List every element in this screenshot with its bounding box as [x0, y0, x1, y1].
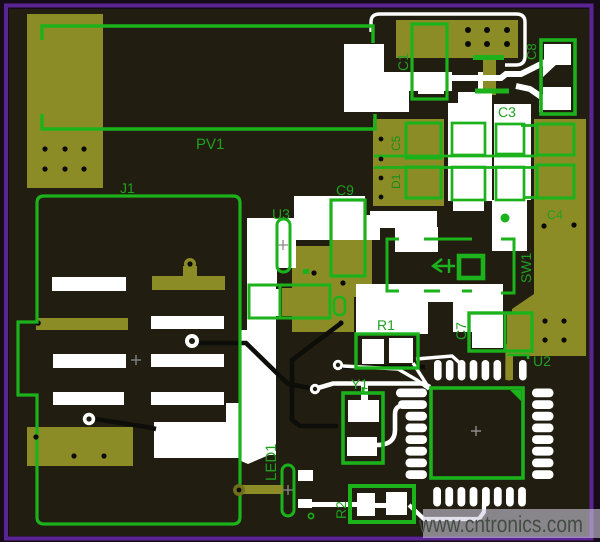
svg-text:C3: C3	[498, 104, 516, 120]
svg-text:R1: R1	[377, 317, 395, 333]
svg-text:R2: R2	[333, 501, 349, 519]
svg-text:www.cntronics.com: www.cntronics.com	[418, 511, 583, 537]
svg-text:C4: C4	[547, 208, 563, 222]
svg-text:SW1: SW1	[518, 252, 534, 283]
svg-text:U2: U2	[533, 353, 551, 369]
svg-text:PV1: PV1	[196, 136, 224, 153]
svg-text:Y1: Y1	[351, 376, 368, 392]
svg-text:C8: C8	[524, 43, 539, 60]
svg-text:C5: C5	[389, 135, 403, 151]
svg-text:LED1: LED1	[263, 443, 280, 481]
svg-text:U3: U3	[272, 206, 290, 222]
svg-text:C7: C7	[453, 322, 469, 340]
svg-text:J1: J1	[120, 180, 135, 196]
svg-text:C1: C1	[395, 53, 411, 71]
svg-text:C9: C9	[336, 182, 354, 198]
svg-text:D1: D1	[389, 173, 403, 189]
